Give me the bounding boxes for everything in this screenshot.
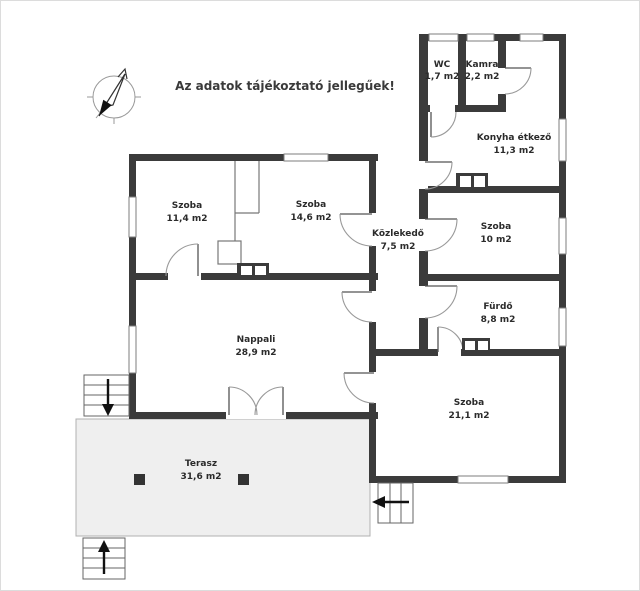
window bbox=[559, 308, 566, 346]
svg-text:Nappali: Nappali bbox=[237, 335, 276, 345]
terrace bbox=[76, 419, 370, 536]
svg-text:WC: WC bbox=[434, 60, 451, 70]
svg-text:31,6 m2: 31,6 m2 bbox=[181, 472, 222, 482]
window bbox=[284, 154, 328, 161]
window bbox=[129, 197, 136, 237]
window bbox=[559, 119, 566, 161]
window bbox=[429, 34, 458, 41]
room-label-nappali: Nappali 28,9 m2 bbox=[236, 335, 277, 358]
svg-text:Szoba: Szoba bbox=[296, 200, 326, 210]
door-furdo-szoba bbox=[438, 327, 463, 352]
stairs-bottom bbox=[83, 538, 125, 579]
window bbox=[129, 326, 136, 373]
partitions bbox=[218, 161, 259, 264]
terrace-slab bbox=[76, 419, 370, 536]
chimneys bbox=[237, 173, 490, 353]
svg-text:Fürdő: Fürdő bbox=[483, 302, 512, 312]
svg-text:8,8 m2: 8,8 m2 bbox=[481, 315, 516, 325]
stairs-left bbox=[84, 375, 129, 416]
svg-text:Szoba: Szoba bbox=[454, 398, 484, 408]
door-szoba-11-4 bbox=[166, 244, 198, 276]
svg-text:Konyha étkező: Konyha étkező bbox=[477, 132, 552, 143]
svg-text:14,6 m2: 14,6 m2 bbox=[291, 213, 332, 223]
floor-plan-svg: Az adatok tájékoztató jellegűek! bbox=[1, 1, 640, 591]
floor-plan-image: Az adatok tájékoztató jellegűek! bbox=[0, 0, 640, 591]
window bbox=[520, 34, 543, 41]
window bbox=[458, 476, 508, 483]
room-label-wc: WC 1,7 m2 bbox=[425, 60, 460, 82]
room-label-szoba-10: Szoba 10 m2 bbox=[480, 222, 511, 245]
room-label-furdo: Fürdő 8,8 m2 bbox=[481, 302, 516, 325]
window bbox=[559, 218, 566, 254]
stairs-right bbox=[372, 483, 413, 523]
svg-text:Szoba: Szoba bbox=[481, 222, 511, 232]
svg-text:10 m2: 10 m2 bbox=[480, 235, 511, 245]
svg-text:Közlekedő: Közlekedő bbox=[372, 229, 424, 239]
terrace-post bbox=[134, 474, 145, 485]
svg-text:11,4 m2: 11,4 m2 bbox=[167, 214, 208, 224]
disclaimer-title: Az adatok tájékoztató jellegűek! bbox=[175, 79, 395, 93]
room-label-szoba-14-6: Szoba 14,6 m2 bbox=[291, 200, 332, 223]
terrace-post bbox=[238, 474, 249, 485]
svg-text:Terasz: Terasz bbox=[185, 459, 217, 469]
chimney bbox=[456, 173, 488, 190]
svg-text:2,2 m2: 2,2 m2 bbox=[465, 72, 500, 82]
room-label-kozlekedo: Közlekedő 7,5 m2 bbox=[372, 229, 424, 252]
door-szoba-10 bbox=[425, 219, 457, 251]
french-door-terrace bbox=[229, 387, 283, 415]
chimney bbox=[237, 263, 269, 278]
svg-text:21,1 m2: 21,1 m2 bbox=[449, 411, 490, 421]
door-szoba-14-6 bbox=[340, 214, 372, 246]
svg-text:1,7 m2: 1,7 m2 bbox=[425, 72, 460, 82]
room-label-szoba-21-1: Szoba 21,1 m2 bbox=[449, 398, 490, 421]
door-wc bbox=[431, 112, 456, 137]
door-kamra bbox=[505, 68, 531, 94]
door-furdo bbox=[425, 286, 457, 318]
svg-text:11,3 m2: 11,3 m2 bbox=[494, 146, 535, 156]
built-in-cabinet bbox=[218, 241, 241, 264]
room-label-konyha-etkezo: Konyha étkező 11,3 m2 bbox=[477, 132, 552, 156]
svg-text:7,5 m2: 7,5 m2 bbox=[381, 242, 416, 252]
compass-icon bbox=[87, 69, 141, 124]
svg-text:Kamra: Kamra bbox=[466, 60, 499, 70]
window bbox=[467, 34, 494, 41]
svg-text:Szoba: Szoba bbox=[172, 201, 202, 211]
room-label-szoba-11-4: Szoba 11,4 m2 bbox=[167, 201, 208, 224]
door-konyha bbox=[425, 162, 452, 189]
walls bbox=[129, 34, 566, 483]
chimney bbox=[462, 338, 490, 353]
room-label-kamra: Kamra 2,2 m2 bbox=[465, 60, 500, 82]
stairs-up-arrow-icon bbox=[98, 540, 110, 574]
door-nappali-kozlekedo bbox=[342, 292, 372, 322]
svg-text:28,9 m2: 28,9 m2 bbox=[236, 348, 277, 358]
